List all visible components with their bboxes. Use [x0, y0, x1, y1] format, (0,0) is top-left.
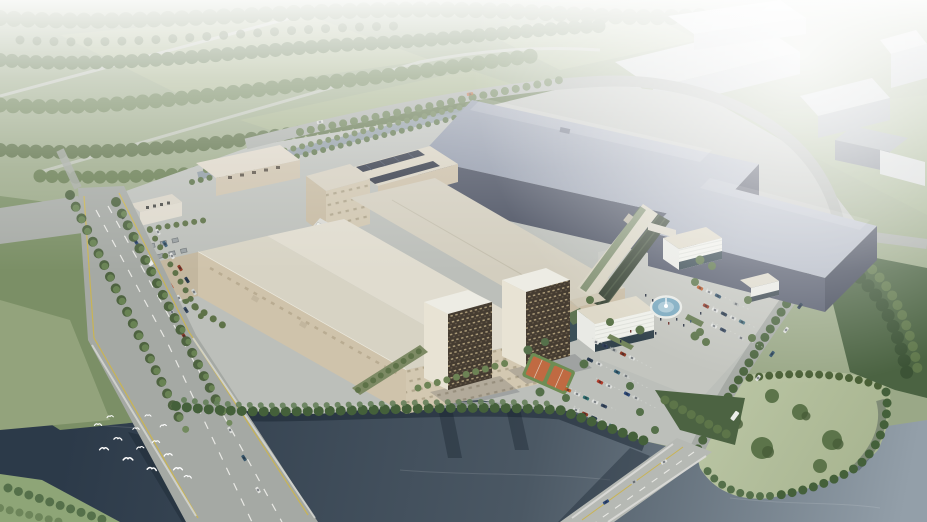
aerial-render-canvas	[0, 0, 927, 522]
haze-overlay-topright	[0, 0, 927, 522]
